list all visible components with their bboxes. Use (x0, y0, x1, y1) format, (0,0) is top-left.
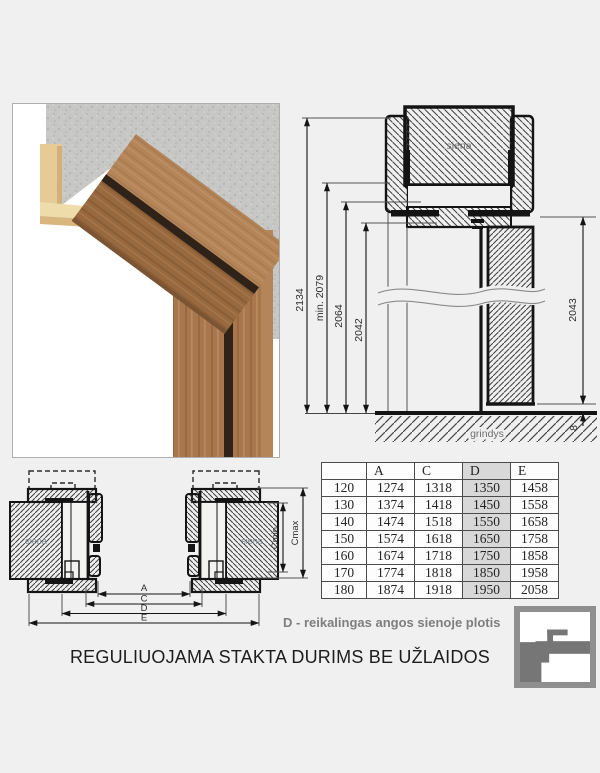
table-cell: 1850 (463, 565, 511, 582)
note-d: D - reikalingas angos sienoje plotis (283, 615, 543, 630)
table-header-row: ACDE (322, 463, 559, 480)
table-cell: 1558 (511, 497, 559, 514)
table-row: 1501574161816501758 (322, 531, 559, 548)
wall-label: siena (446, 140, 471, 152)
table-cell: 1418 (415, 497, 463, 514)
table-row: 1201274131813501458 (322, 480, 559, 497)
mounting-gap (408, 186, 510, 206)
latch-detail (93, 544, 100, 552)
frame-profile-logo-icon (520, 612, 590, 682)
table-header: D (463, 463, 511, 480)
table-cell: 160 (322, 548, 367, 565)
table-row: 1401474151815501658 (322, 514, 559, 531)
photo-panel (12, 103, 280, 458)
table-cell: 1874 (367, 582, 415, 599)
page-title: REGULIUOJAMA STAKTA DURIMS BE UŽLAIDOS (0, 647, 560, 668)
table-cell: 1650 (463, 531, 511, 548)
dim-a: A (141, 583, 148, 594)
table-cell: 150 (322, 531, 367, 548)
lintel-bar-right (468, 210, 530, 217)
seal-detail (471, 219, 484, 223)
frame-body (62, 502, 88, 579)
table-cell: 1374 (367, 497, 415, 514)
table-cell: 120 (322, 480, 367, 497)
table-cell: 130 (322, 497, 367, 514)
dim-cmin: Cmin (270, 527, 281, 549)
table-cell: 140 (322, 514, 367, 531)
jamb-assembly-mirrored (186, 471, 278, 592)
table-header (322, 463, 367, 480)
frame-corner-photo (13, 104, 279, 457)
table-row: 1701774181818501958 (322, 565, 559, 582)
table-cell: 1758 (511, 531, 559, 548)
table-header: C (415, 463, 463, 480)
dim-total-height: 2134 (295, 288, 306, 312)
table-cell: 1350 (463, 480, 511, 497)
table-cell: 1950 (463, 582, 511, 599)
table-cell: 1450 (463, 497, 511, 514)
frame-anchor-right (508, 150, 513, 188)
dim-door-height: 2043 (567, 298, 579, 322)
table-row: 1301374141814501558 (322, 497, 559, 514)
table-cell: 1774 (367, 565, 415, 582)
lintel-bar-left (391, 210, 439, 217)
table-row: 1601674171817501858 (322, 548, 559, 565)
table-cell: 1550 (463, 514, 511, 531)
dim-opening-height: 2042 (353, 318, 365, 342)
brand-logo (514, 606, 596, 688)
dim-mid-height: 2064 (333, 304, 345, 328)
plan-drawing: siena siena A C D E Cmin Cmax (5, 458, 315, 638)
table-cell: 1618 (415, 531, 463, 548)
table-cell: 1818 (415, 565, 463, 582)
dim-e: E (141, 613, 147, 624)
table-cell: 2058 (511, 582, 559, 599)
table-cell: 1474 (367, 514, 415, 531)
casing-detail-2 (45, 580, 73, 584)
wall-label-right: siena (241, 536, 263, 546)
adjustable-casing-lower (89, 556, 100, 576)
door-leaf-dashed (29, 471, 95, 489)
product-sheet: siena grindys (0, 0, 600, 773)
table-cell: 1918 (415, 582, 463, 599)
table-cell: 1274 (367, 480, 415, 497)
jamb-assembly (10, 471, 102, 592)
dim-min-height: min. 2079 (314, 275, 326, 321)
floor-label: grindys (470, 428, 504, 440)
table-cell: 1318 (415, 480, 463, 497)
table-cell: 1958 (511, 565, 559, 582)
table-row: 1801874191819502058 (322, 582, 559, 599)
table-cell: 170 (322, 565, 367, 582)
table-cell: 1718 (415, 548, 463, 565)
door-leaf-section (488, 227, 533, 404)
frame-anchor-left (405, 150, 410, 188)
table-cell: 1858 (511, 548, 559, 565)
table-cell: 1458 (511, 480, 559, 497)
dimensions-table: ACDE120127413181350145813013741418145015… (321, 462, 559, 599)
adjustable-casing-upper (89, 494, 102, 542)
table-header: E (511, 463, 559, 480)
dim-cmax: Cmax (290, 520, 301, 545)
dim-floor-gap: 8 (568, 425, 580, 431)
section-drawing: siena grindys (295, 90, 600, 462)
table-cell: 1674 (367, 548, 415, 565)
table-cell: 1658 (511, 514, 559, 531)
table-cell: 1750 (463, 548, 511, 565)
wall-label-left: siena (25, 536, 47, 546)
table-cell: 1574 (367, 531, 415, 548)
table-cell: 180 (322, 582, 367, 599)
table-cell: 1518 (415, 514, 463, 531)
table-header: A (367, 463, 415, 480)
